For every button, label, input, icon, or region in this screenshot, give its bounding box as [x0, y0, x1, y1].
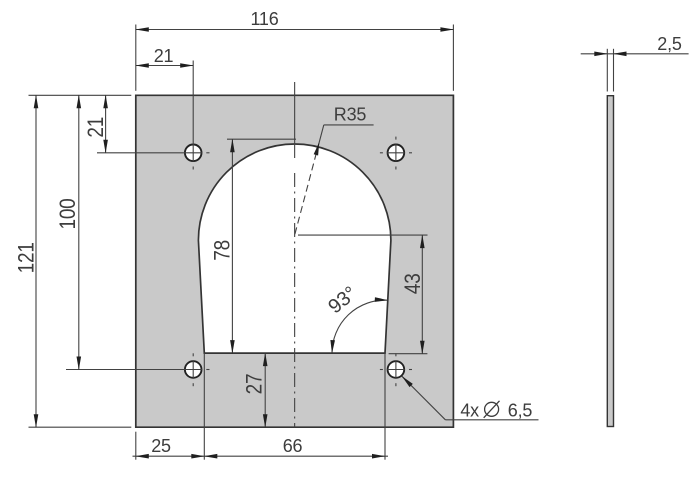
- svg-text:43: 43: [401, 273, 426, 294]
- svg-text:4x: 4x: [460, 401, 479, 421]
- svg-text:27: 27: [242, 374, 267, 395]
- svg-text:21: 21: [84, 117, 109, 138]
- svg-text:100: 100: [56, 198, 81, 229]
- svg-text:66: 66: [283, 436, 303, 456]
- svg-text:6,5: 6,5: [508, 401, 533, 421]
- svg-text:25: 25: [151, 436, 171, 456]
- svg-text:21: 21: [154, 46, 174, 66]
- svg-text:2,5: 2,5: [657, 34, 682, 54]
- svg-text:R35: R35: [334, 104, 367, 124]
- svg-text:116: 116: [250, 9, 278, 29]
- svg-text:78: 78: [210, 240, 235, 261]
- svg-text:121: 121: [14, 242, 39, 273]
